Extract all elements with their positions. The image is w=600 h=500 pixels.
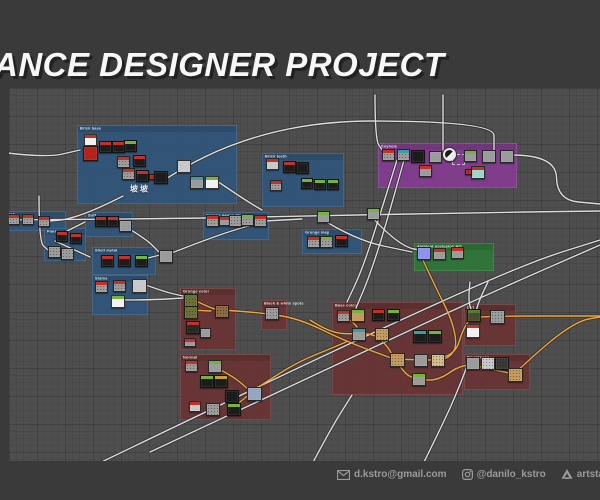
graph-node[interactable] bbox=[372, 309, 385, 321]
node-wire bbox=[9, 150, 80, 156]
node-group-label: Grunge map bbox=[305, 230, 329, 234]
node-header bbox=[57, 232, 67, 235]
node-header bbox=[201, 376, 213, 379]
graph-node[interactable] bbox=[451, 247, 464, 259]
graph-node[interactable] bbox=[465, 169, 472, 175]
footer-artstation-text: artstation.com/ bbox=[577, 469, 600, 480]
node-wire bbox=[265, 219, 302, 221]
screenshot-root: Brick baseBrick teethMaskFlareSoftShell … bbox=[0, 0, 600, 500]
graph-node[interactable] bbox=[390, 353, 405, 367]
email-icon bbox=[337, 470, 350, 480]
graph-node[interactable] bbox=[375, 328, 389, 341]
instagram-icon bbox=[462, 469, 473, 480]
node-header bbox=[118, 157, 129, 160]
node-header bbox=[255, 216, 266, 219]
graph-node[interactable] bbox=[136, 170, 149, 182]
graph-node[interactable] bbox=[419, 165, 432, 177]
node-header bbox=[185, 307, 197, 310]
graph-node[interactable] bbox=[83, 146, 98, 161]
graph-node[interactable] bbox=[48, 246, 61, 258]
node-wire bbox=[143, 284, 183, 296]
node-header bbox=[108, 217, 118, 220]
graph-node[interactable] bbox=[352, 328, 366, 341]
graph-node[interactable] bbox=[382, 149, 395, 161]
node-wire bbox=[310, 395, 352, 461]
graph-node[interactable] bbox=[135, 255, 148, 267]
graph-node[interactable] bbox=[266, 158, 279, 170]
graph-node[interactable] bbox=[397, 149, 410, 161]
node-header bbox=[429, 331, 441, 334]
node-header bbox=[209, 361, 221, 364]
node-header bbox=[388, 310, 399, 313]
node-header bbox=[368, 209, 379, 212]
node-header bbox=[190, 402, 200, 405]
node-wire bbox=[143, 284, 183, 296]
node-header bbox=[185, 339, 195, 342]
graph-node[interactable] bbox=[154, 171, 168, 184]
node-header bbox=[321, 237, 332, 240]
graph-node[interactable] bbox=[95, 216, 107, 227]
node-header bbox=[96, 282, 107, 285]
node-header bbox=[302, 179, 312, 182]
node-wire bbox=[310, 395, 352, 461]
graph-node[interactable] bbox=[482, 150, 496, 163]
graph-node[interactable] bbox=[367, 208, 380, 220]
graph-node[interactable] bbox=[111, 295, 125, 308]
node-header bbox=[96, 217, 106, 220]
graph-node[interactable] bbox=[117, 156, 130, 168]
graph-node[interactable] bbox=[70, 233, 82, 244]
graph-node[interactable] bbox=[95, 281, 108, 293]
graph-node[interactable] bbox=[159, 250, 173, 263]
graph-node[interactable] bbox=[84, 134, 97, 146]
node-header bbox=[467, 325, 479, 328]
graph-node[interactable] bbox=[122, 168, 135, 180]
node-header bbox=[123, 169, 134, 172]
graph-node[interactable] bbox=[208, 360, 222, 373]
node-header bbox=[23, 215, 33, 218]
graph-node[interactable] bbox=[490, 310, 505, 324]
graph-node[interactable] bbox=[225, 390, 239, 403]
node-header bbox=[112, 296, 124, 299]
node-header bbox=[420, 166, 431, 169]
graph-node[interactable] bbox=[184, 306, 198, 319]
graph-node[interactable] bbox=[227, 403, 241, 416]
node-header bbox=[228, 404, 240, 407]
node-header bbox=[191, 177, 203, 180]
footer-artstation: artstation.com/ bbox=[561, 469, 600, 480]
graph-node[interactable] bbox=[387, 309, 400, 321]
node-header bbox=[220, 217, 229, 220]
graph-node[interactable] bbox=[205, 176, 219, 189]
graph-node[interactable] bbox=[190, 176, 204, 189]
graph-node[interactable] bbox=[414, 354, 428, 367]
graph-node[interactable] bbox=[132, 279, 147, 293]
footer-email: d.kstro@gmail.com bbox=[337, 469, 447, 480]
graph-node[interactable] bbox=[189, 401, 201, 412]
node-header bbox=[336, 236, 347, 239]
node-wire bbox=[265, 219, 302, 221]
graph-node[interactable] bbox=[417, 247, 431, 260]
node-group-label: Brick base bbox=[80, 126, 101, 130]
footer-email-text: d.kstro@gmail.com bbox=[354, 469, 447, 480]
node-wire bbox=[512, 155, 600, 204]
node-header bbox=[434, 249, 445, 252]
node-header bbox=[373, 310, 384, 313]
node-header bbox=[398, 150, 409, 153]
footer-instagram-text: @danilo_kstro bbox=[477, 469, 546, 480]
graph-node[interactable] bbox=[433, 248, 446, 260]
graph-node[interactable] bbox=[327, 179, 339, 190]
graph-node[interactable] bbox=[265, 307, 279, 320]
node-header bbox=[468, 310, 480, 313]
node-group-label: Base color bbox=[335, 303, 356, 307]
graph-node[interactable] bbox=[428, 330, 442, 343]
node-header bbox=[353, 329, 365, 332]
graph-node[interactable] bbox=[186, 321, 200, 334]
graph-node[interactable] bbox=[99, 141, 112, 153]
node-header bbox=[9, 215, 19, 218]
graph-node[interactable] bbox=[118, 255, 131, 267]
node-header bbox=[85, 135, 96, 138]
node-group-label: Keyhole bbox=[381, 144, 397, 148]
node-header bbox=[113, 142, 124, 145]
graph-node[interactable] bbox=[508, 368, 523, 382]
node-header bbox=[136, 256, 147, 259]
node-header bbox=[267, 159, 278, 162]
node-header bbox=[338, 311, 349, 314]
node-header bbox=[328, 180, 338, 183]
page-title: ANCE DESIGNER PROJECT bbox=[0, 46, 445, 84]
graph-node[interactable] bbox=[412, 373, 426, 386]
node-header bbox=[187, 322, 199, 325]
node-group[interactable]: Brick base bbox=[77, 125, 237, 204]
graph-node[interactable] bbox=[241, 214, 254, 226]
graph-node[interactable] bbox=[177, 160, 191, 173]
node-group-label: Stains bbox=[95, 276, 108, 280]
node-header bbox=[125, 141, 136, 144]
node-header bbox=[308, 237, 319, 240]
graph-node[interactable] bbox=[247, 387, 262, 401]
graph-node[interactable] bbox=[466, 357, 480, 370]
graph-node[interactable] bbox=[56, 231, 68, 242]
node-header bbox=[206, 177, 218, 180]
graph-node[interactable] bbox=[411, 150, 425, 163]
node-group-label: Shell metal bbox=[95, 248, 117, 252]
graph-node[interactable] bbox=[283, 161, 296, 173]
graph-node[interactable] bbox=[61, 248, 74, 260]
node-group-label: Grunge color bbox=[183, 289, 209, 293]
graph-node[interactable] bbox=[200, 328, 211, 338]
graph-node[interactable] bbox=[413, 330, 427, 343]
graph-node[interactable] bbox=[481, 357, 495, 370]
footer: d.kstro@gmail.com @danilo_kstro artstati… bbox=[337, 469, 600, 480]
graph-node[interactable] bbox=[500, 150, 514, 163]
node-header bbox=[137, 171, 148, 174]
graph-node[interactable] bbox=[317, 211, 330, 223]
node-graph-canvas[interactable]: Brick baseBrick teethMaskFlareSoftShell … bbox=[9, 88, 600, 461]
graph-node[interactable] bbox=[22, 214, 34, 225]
graph-node[interactable] bbox=[107, 216, 119, 227]
graph-node[interactable] bbox=[184, 338, 196, 347]
graph-node[interactable] bbox=[113, 280, 126, 292]
node-header bbox=[119, 256, 130, 259]
graph-node[interactable] bbox=[495, 357, 509, 370]
graph-node[interactable] bbox=[301, 178, 313, 189]
graph-content: Brick baseBrick teethMaskFlareSoftShell … bbox=[9, 88, 600, 461]
graph-node[interactable] bbox=[431, 354, 445, 367]
node-wire bbox=[9, 150, 80, 156]
graph-node[interactable] bbox=[214, 375, 228, 388]
node-header bbox=[242, 215, 253, 218]
graph-node[interactable] bbox=[101, 255, 114, 267]
graph-node[interactable] bbox=[215, 305, 229, 318]
graph-node[interactable] bbox=[254, 215, 267, 227]
graph-node[interactable] bbox=[9, 214, 20, 225]
graph-node[interactable] bbox=[351, 309, 365, 322]
node-header bbox=[71, 234, 81, 237]
node-header bbox=[39, 217, 49, 220]
graph-node[interactable] bbox=[429, 151, 442, 163]
node-group-label: Black & white spots bbox=[264, 301, 304, 305]
node-header bbox=[414, 331, 426, 334]
graph-node[interactable] bbox=[133, 155, 146, 167]
node-wire bbox=[512, 155, 600, 204]
node-header bbox=[472, 167, 484, 170]
node-header bbox=[100, 142, 111, 145]
graph-node[interactable] bbox=[185, 360, 198, 372]
graph-node[interactable] bbox=[38, 216, 50, 227]
graph-node[interactable] bbox=[206, 215, 219, 227]
node-header bbox=[318, 212, 329, 215]
node-header bbox=[452, 248, 463, 251]
graph-node[interactable] bbox=[335, 235, 348, 247]
graph-node[interactable] bbox=[464, 150, 477, 162]
graph-annotation-text: 坡 坡 bbox=[130, 182, 148, 194]
node-group-label: Normal bbox=[183, 355, 197, 359]
node-header bbox=[186, 361, 197, 364]
graph-node[interactable] bbox=[314, 179, 326, 190]
node-header bbox=[383, 150, 394, 153]
graph-node[interactable] bbox=[119, 220, 132, 232]
graph-node[interactable] bbox=[206, 403, 220, 416]
artstation-icon bbox=[561, 469, 573, 480]
node-header bbox=[102, 256, 113, 259]
node-header bbox=[215, 376, 227, 379]
node-header bbox=[413, 374, 425, 377]
node-header bbox=[134, 156, 145, 159]
graph-node[interactable] bbox=[320, 236, 333, 248]
node-header bbox=[352, 310, 364, 313]
node-header bbox=[207, 216, 218, 219]
node-header bbox=[284, 162, 295, 165]
node-header bbox=[114, 281, 125, 284]
graph-node[interactable] bbox=[296, 162, 309, 174]
graph-node[interactable] bbox=[124, 140, 137, 152]
graph-node[interactable] bbox=[466, 324, 480, 338]
node-header bbox=[185, 295, 197, 298]
node-header bbox=[315, 180, 325, 183]
node-header bbox=[465, 151, 476, 154]
footer-instagram: @danilo_kstro bbox=[462, 469, 546, 480]
graph-node[interactable] bbox=[270, 180, 282, 191]
node-header bbox=[271, 181, 281, 184]
graph-node[interactable] bbox=[307, 236, 320, 248]
graph-node[interactable] bbox=[200, 375, 214, 388]
graph-node[interactable] bbox=[467, 309, 481, 322]
graph-node[interactable] bbox=[337, 310, 350, 322]
graph-node[interactable] bbox=[471, 166, 485, 179]
